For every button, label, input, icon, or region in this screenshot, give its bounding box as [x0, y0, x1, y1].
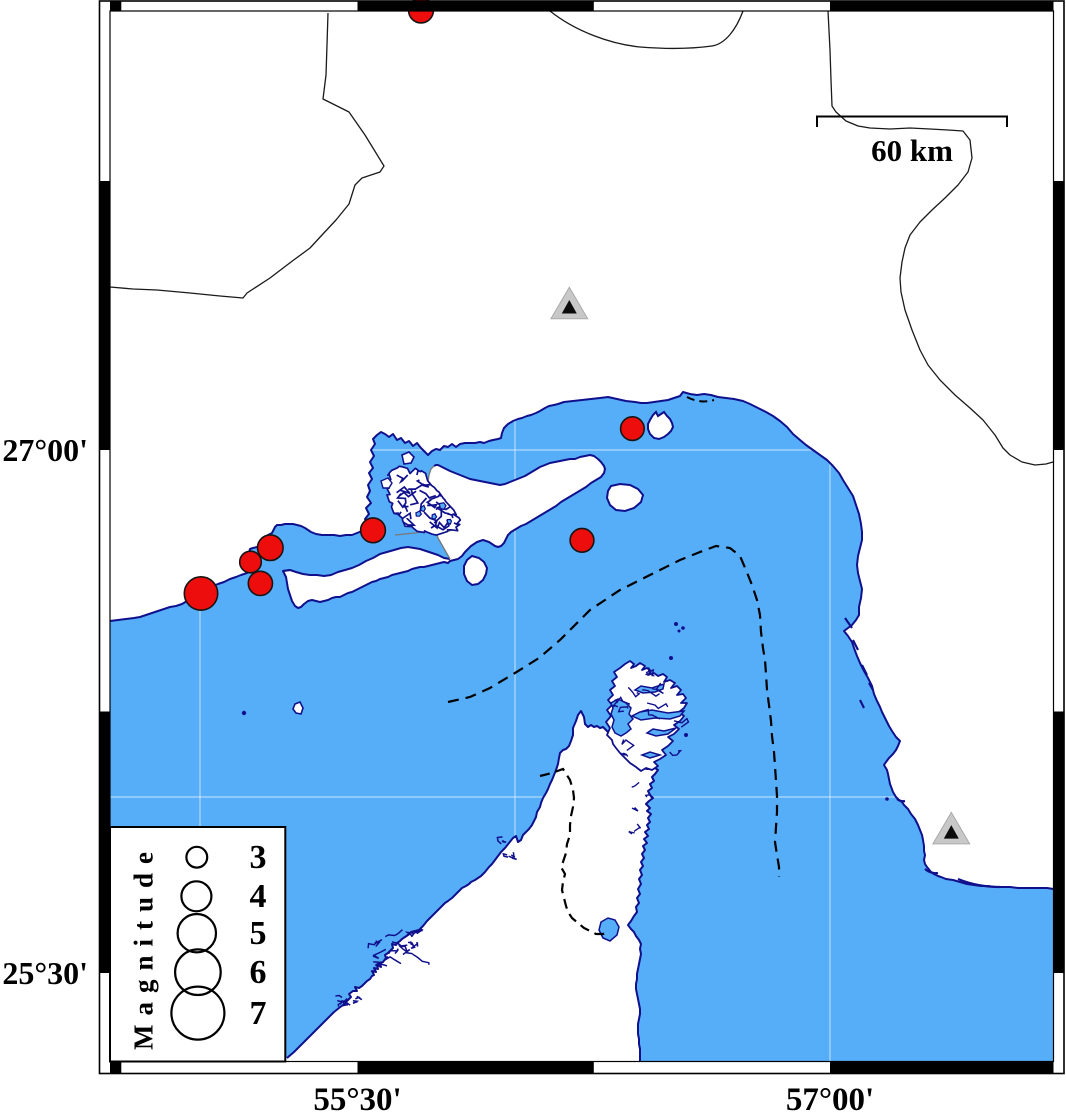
svg-text:55°30': 55°30' [313, 1082, 401, 1112]
svg-text:Magnitude: Magnitude [129, 843, 159, 1050]
svg-text:7: 7 [250, 995, 267, 1032]
svg-text:27°00': 27°00' [2, 432, 88, 468]
svg-text:6: 6 [250, 954, 267, 991]
svg-text:5: 5 [250, 915, 267, 952]
svg-text:60 km: 60 km [871, 133, 953, 168]
svg-text:57°00': 57°00' [786, 1082, 874, 1112]
svg-text:25°30': 25°30' [2, 955, 88, 991]
svg-text:4: 4 [250, 878, 267, 915]
svg-text:3: 3 [250, 839, 267, 876]
